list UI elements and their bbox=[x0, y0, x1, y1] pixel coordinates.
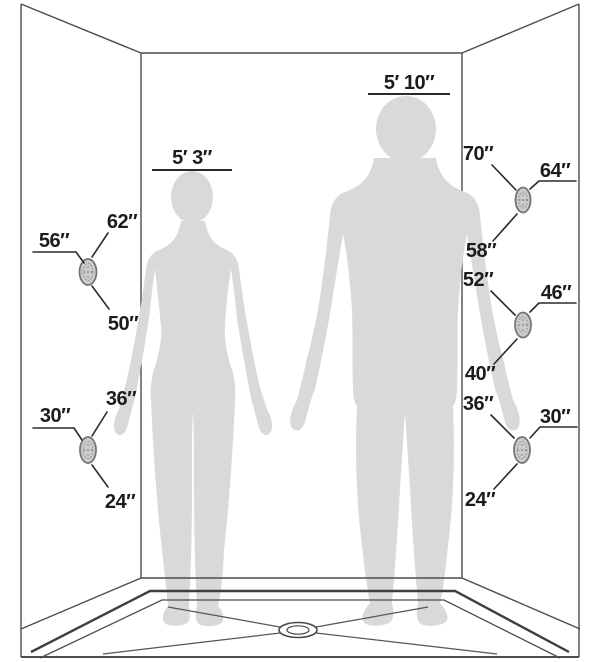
measurement-label-right2-bottom: 40″ bbox=[465, 363, 496, 385]
spray-jet-icon-left-upper bbox=[80, 259, 97, 285]
female-body bbox=[114, 221, 272, 626]
measurement-label-left1-top: 62″ bbox=[107, 211, 138, 233]
leader-left1-side bbox=[33, 252, 84, 263]
spray-jet-icon-right-upper bbox=[516, 188, 531, 213]
drain-outer-ring bbox=[279, 623, 317, 638]
drain-icon bbox=[279, 623, 317, 638]
spray-jet-icon-right-lower bbox=[514, 437, 530, 463]
leader-right3-side bbox=[530, 427, 577, 438]
measurement-label-right1-top: 70″ bbox=[463, 143, 494, 165]
female-height-label: 5′ 3″ bbox=[172, 147, 213, 169]
leader-left1-top bbox=[92, 233, 108, 257]
female-head bbox=[171, 171, 213, 223]
leader-right1-top bbox=[492, 165, 516, 190]
leader-right2-side bbox=[530, 303, 576, 312]
measurement-label-right3-side: 30″ bbox=[540, 406, 571, 428]
male-head bbox=[376, 96, 436, 162]
leader-right3-bottom bbox=[494, 464, 517, 489]
leader-right2-top bbox=[491, 291, 515, 315]
leader-left1-bottom bbox=[92, 286, 109, 309]
measurement-label-left1-side: 56″ bbox=[39, 230, 70, 252]
measurement-label-left2-side: 30″ bbox=[40, 405, 71, 427]
shower-height-diagram: 5′ 3″ 5′ 10″ 62″ 56″ 50″ 36″ 30″ 24″ 70″… bbox=[0, 0, 600, 662]
spray-jet-icon-left-lower bbox=[80, 437, 96, 463]
male-height-label: 5′ 10″ bbox=[384, 72, 435, 94]
measurement-label-right3-bottom: 24″ bbox=[465, 489, 496, 511]
right-wall-top-edge bbox=[462, 4, 579, 53]
slope-crease-front-right bbox=[316, 633, 497, 654]
measurement-label-right2-top: 52″ bbox=[463, 269, 494, 291]
measurement-label-right2-side: 46″ bbox=[541, 282, 572, 304]
spray-jet-icon-right-middle bbox=[515, 313, 531, 338]
female-silhouette bbox=[114, 171, 272, 626]
measurement-label-left1-bottom: 50″ bbox=[108, 313, 139, 335]
male-body bbox=[290, 158, 520, 626]
diagram-canvas: 5′ 3″ 5′ 10″ 62″ 56″ 50″ 36″ 30″ 24″ 70″… bbox=[0, 0, 600, 662]
male-silhouette bbox=[290, 96, 520, 626]
leader-right1-bottom bbox=[493, 214, 517, 241]
left-wall-top-edge bbox=[21, 4, 141, 53]
measurement-label-left2-top: 36″ bbox=[106, 388, 137, 410]
measurement-label-right1-bottom: 58″ bbox=[466, 240, 497, 262]
shower-floor bbox=[21, 578, 580, 658]
measurement-label-right3-top: 36″ bbox=[463, 393, 494, 415]
measurement-label-left2-bottom: 24″ bbox=[105, 491, 136, 513]
leader-left2-top bbox=[92, 412, 107, 436]
leader-left2-side bbox=[33, 428, 82, 440]
measurement-label-right1-side: 64″ bbox=[540, 160, 571, 182]
slope-crease-front-left bbox=[103, 633, 280, 654]
leader-right1-side bbox=[530, 181, 576, 189]
leader-left2-bottom bbox=[92, 465, 108, 487]
